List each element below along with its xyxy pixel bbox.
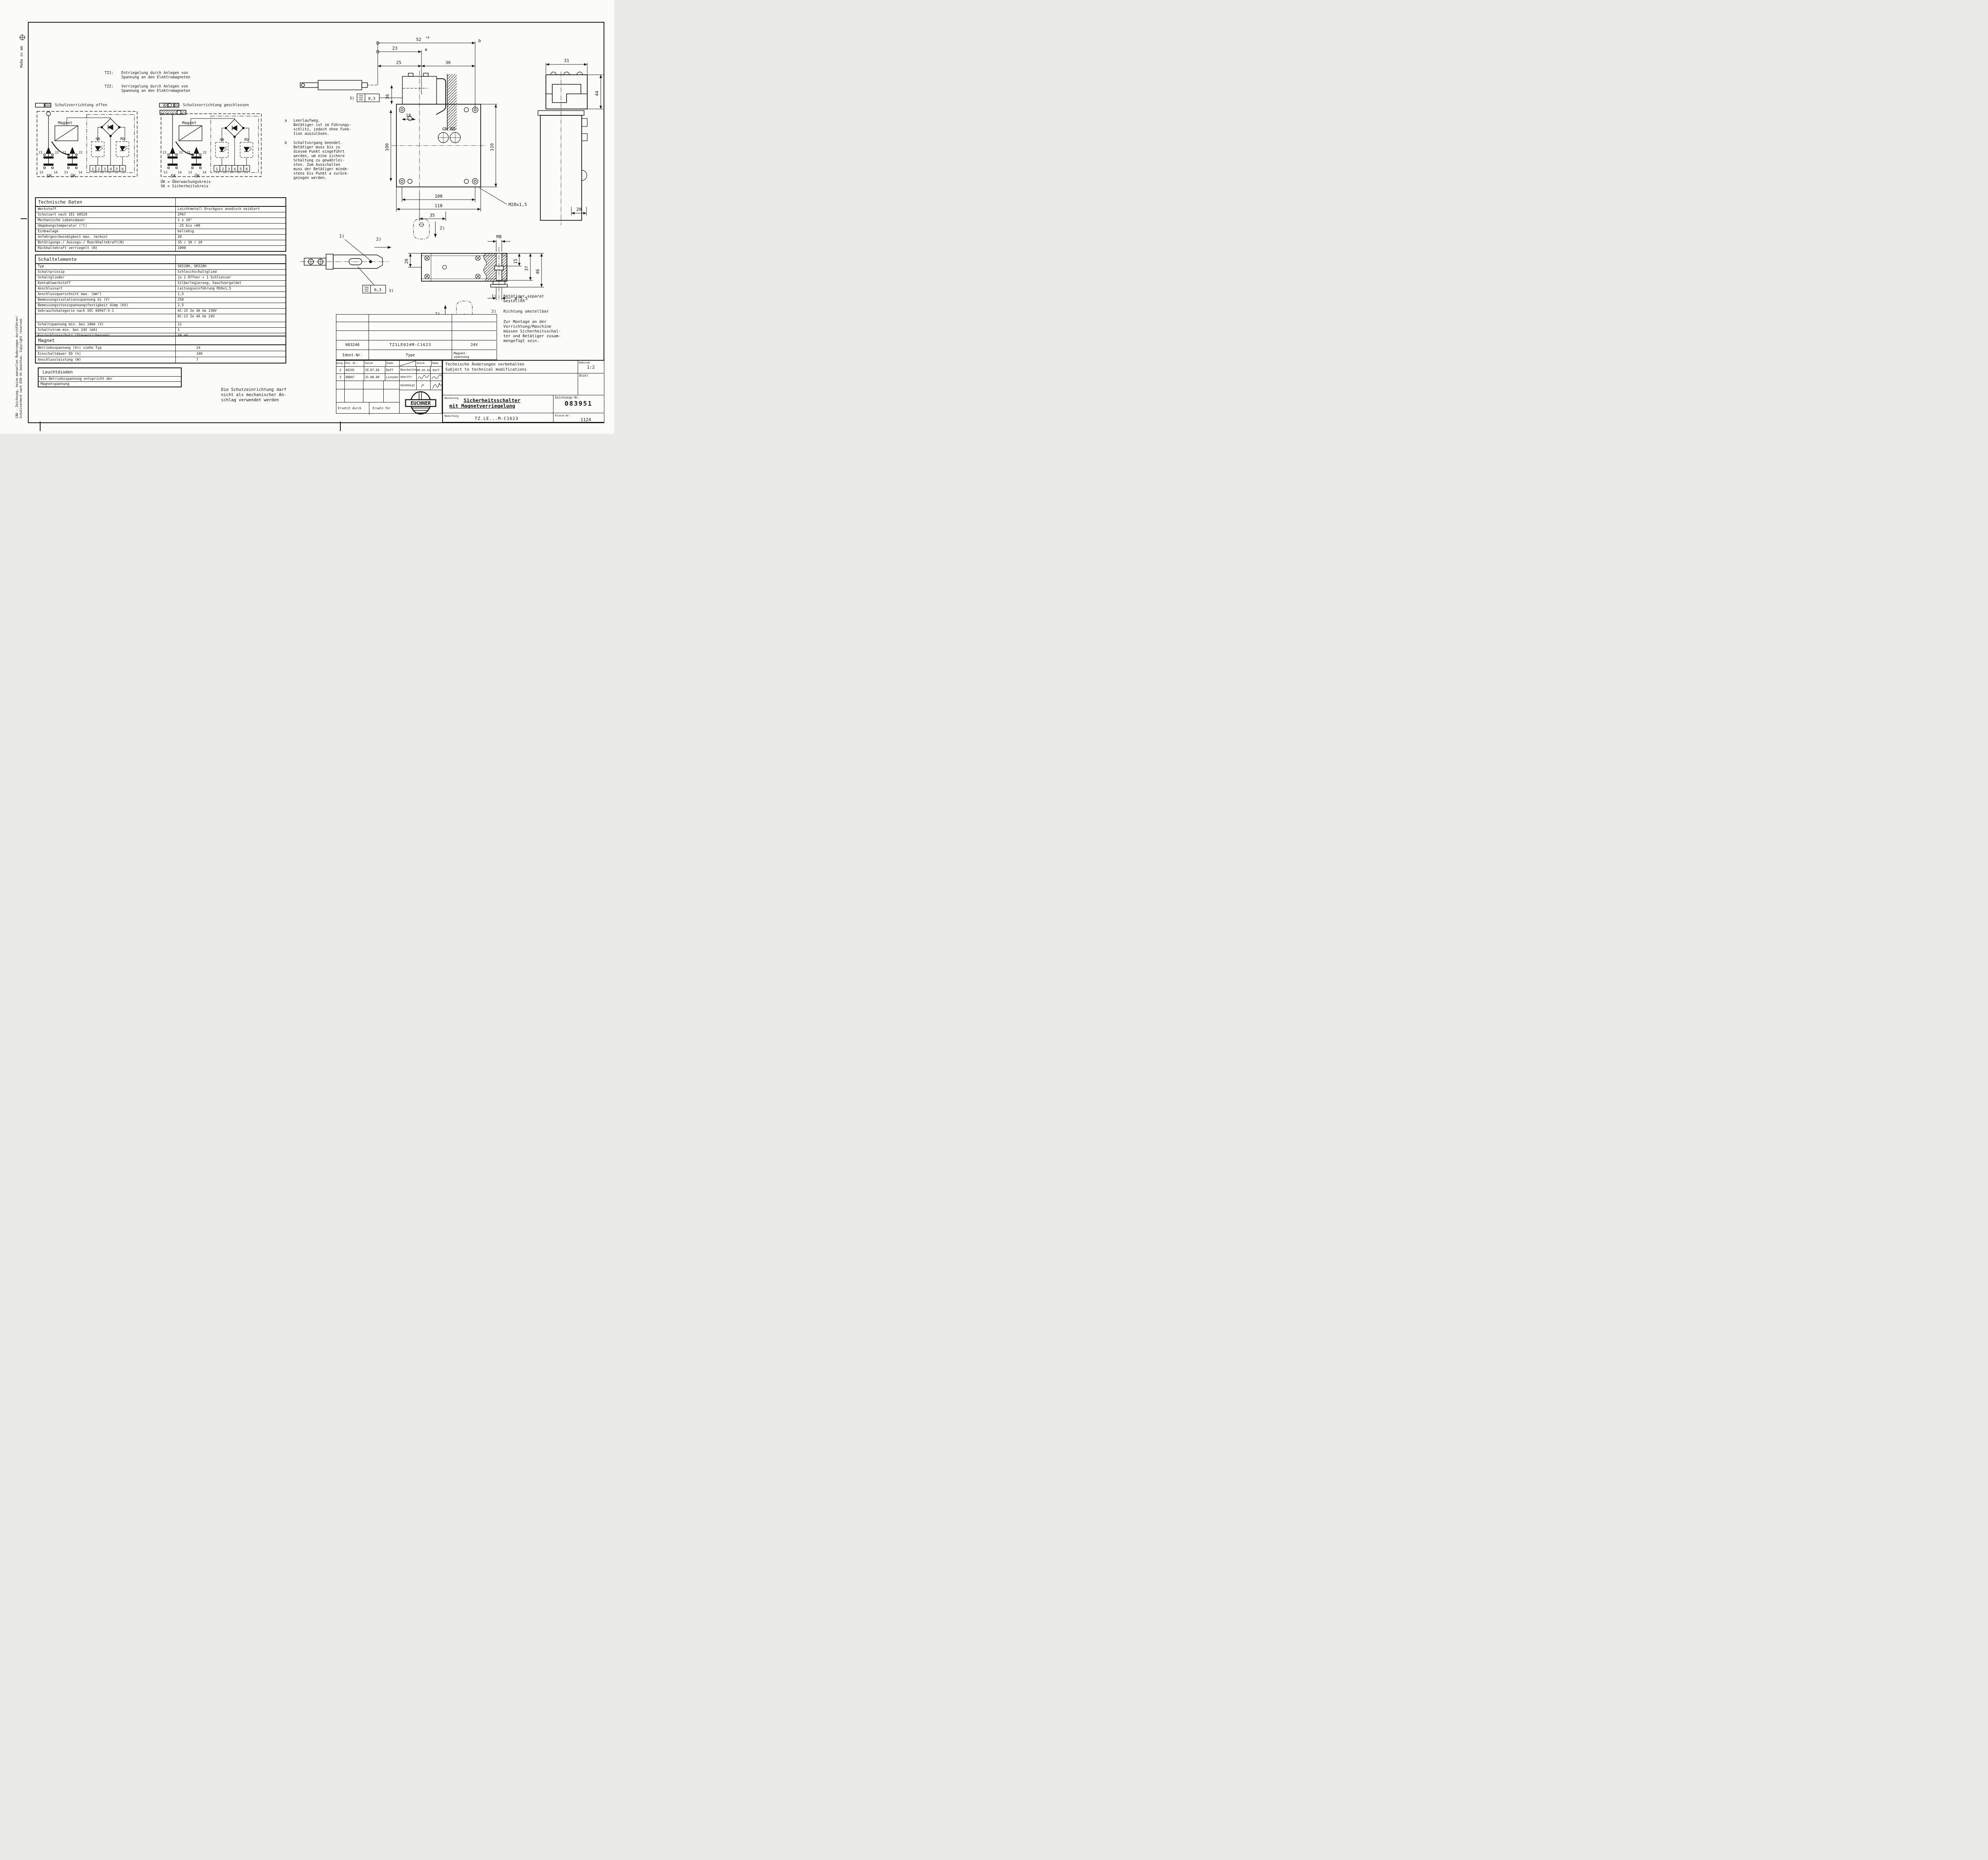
svg-text:22: 22	[79, 151, 83, 154]
circuit-diagram-closed: Magnet 21 22 21 22 13 14 13 14 SK ÜK GN …	[159, 110, 263, 178]
svg-text:3): 3)	[389, 289, 394, 293]
svg-text:13: 13	[188, 171, 192, 174]
modification-note: Technische Änderungen vorbehalten Subjec…	[443, 361, 578, 373]
units-note: Maße in mm	[20, 46, 24, 68]
svg-text:110: 110	[435, 203, 443, 208]
svg-text:46: 46	[535, 269, 540, 274]
svg-text:14: 14	[54, 171, 58, 174]
svg-text:ø 5,5: ø 5,5	[514, 296, 528, 301]
tz1-label: TZ1:	[105, 71, 118, 80]
table-row: Einbaulage beliebig	[36, 229, 285, 235]
approval-table: Datum Name Bearbeitet 06.02.01 Raff Gepr…	[400, 360, 442, 414]
svg-text:GN: GN	[220, 138, 224, 142]
table-row: Mechanische Lebensdauer 1 x 10⁶	[36, 218, 285, 224]
svg-text:4: 4	[234, 167, 236, 171]
signature	[431, 381, 443, 390]
table-row: Gebrauchskategorie nach IEC 60947-5-1 AC…	[36, 309, 285, 314]
svg-text:44: 44	[594, 91, 600, 96]
table-row: Werkstoff Leichtmetall Druckguss anodisc…	[36, 207, 285, 212]
circuit-open-title: Schutzvorrichtung offen	[35, 103, 107, 108]
svg-text:36: 36	[445, 60, 450, 65]
svg-text:6: 6	[122, 167, 124, 171]
svg-text:13: 13	[39, 171, 43, 174]
drawing-sheet: Maße in mm CAD - Zeichnung, keine manuel…	[0, 0, 614, 434]
revision-table: Ausg. Änd.-Nr. Datum Name 2 04245 19.07.…	[336, 360, 400, 414]
svg-text:13: 13	[64, 171, 68, 174]
svg-text:21: 21	[163, 151, 167, 154]
tz2-label: TZ2:	[105, 84, 118, 93]
svg-text:22: 22	[203, 151, 207, 154]
magnet-label: Magnet	[58, 121, 72, 125]
svg-text:GN: GN	[96, 137, 100, 141]
table-row: Anschlussleistung (W) 7	[36, 357, 285, 363]
guard-open-icon	[35, 103, 52, 108]
side-view-drawing: 31 44 20	[527, 56, 612, 231]
table-row: Anfahrgeschwindigkeit max. (m/min) 20	[36, 235, 285, 240]
signature	[417, 374, 430, 381]
table-row: Bemessungsisolationsspannung Ui (V) 250	[36, 297, 285, 303]
cad-protection-note: CAD - Zeichnung, keine manuellen Änderun…	[15, 315, 23, 418]
table-row: Schutzart nach IEC 60529 IP67	[36, 212, 285, 218]
svg-text:22: 22	[179, 151, 183, 154]
svg-text:+4: +4	[426, 36, 430, 39]
svg-text:20: 20	[576, 207, 581, 212]
svg-text:22: 22	[55, 151, 59, 154]
empty-cell	[443, 373, 578, 395]
svg-text:20: 20	[404, 258, 409, 264]
svg-text:100: 100	[384, 143, 390, 151]
table-title: Technische Daten	[36, 198, 176, 206]
svg-text:5: 5	[240, 167, 242, 171]
svg-text:13: 13	[163, 171, 167, 174]
bemerkung-cell: Bemerkung TZ.LE...M-C1623	[443, 413, 553, 423]
table-row: Schaltglieder je 1 Öffner + 1 Schliesser	[36, 275, 285, 281]
title-block-right: Technische Änderungen vorbehalten Subjec…	[442, 360, 604, 422]
svg-text:14: 14	[78, 171, 82, 174]
tz1-text: Entriegelung durch Anlegen von Spannung …	[121, 71, 190, 80]
technische-daten-table: Technische Daten Werkstoff Leichtmetall …	[35, 197, 286, 252]
ident-label: Ident-Nr.	[336, 350, 369, 360]
svg-text:EUCHNER: EUCHNER	[411, 400, 431, 406]
leuchtdioden-box: Leuchtdioden Die Betriebsspannung entspr…	[38, 367, 182, 387]
svg-text:21: 21	[186, 151, 190, 154]
svg-text:6: 6	[246, 167, 248, 171]
svg-text:RD: RD	[120, 137, 125, 141]
signature	[431, 374, 443, 381]
svg-text:100: 100	[435, 194, 443, 199]
svg-text:36: 36	[385, 94, 390, 99]
svg-text:2): 2)	[440, 225, 445, 231]
voltage-value: 24V	[452, 340, 496, 350]
table-row: Typ SK528H, ÜK528H	[36, 264, 285, 270]
table-row: Schaltprinzip Schleichschaltglied	[36, 270, 285, 275]
svg-text:0,3: 0,3	[368, 97, 375, 101]
svg-text:SK: SK	[47, 173, 52, 178]
edge-mark	[21, 218, 27, 219]
blatt-cell: Blatt	[578, 373, 604, 395]
magnet-label: Magnet	[182, 121, 196, 125]
benennung-cell: Benennung Sicherheitsschalter mit Magnet…	[443, 395, 553, 413]
svg-text:b: b	[478, 38, 481, 43]
tz2-text: Verriegelung durch Anlegen von Spannung …	[121, 84, 190, 93]
warning-note: Die Schutzeinrichtung darf nicht als mec…	[221, 387, 286, 403]
svg-text:1: 1	[216, 167, 218, 171]
svg-text:31: 31	[564, 58, 569, 63]
svg-text:18: 18	[406, 113, 411, 118]
ersatz-fuer: Ersatz für	[369, 402, 399, 415]
registration-icon	[19, 34, 25, 41]
table-row: Anschlussart Leitungseinführung M20x1,5	[36, 286, 285, 292]
type-value: TZ1LE024M-C1623	[369, 340, 452, 350]
svg-text:14: 14	[178, 171, 182, 174]
table-title: Magnet	[36, 336, 176, 344]
table-row: Kontaktwerkstoff Silberlegierung, hauchv…	[36, 281, 285, 286]
svg-text:15: 15	[513, 258, 518, 264]
ersetzt-durch: Ersetzt durch	[336, 402, 369, 415]
svg-text:3): 3)	[349, 96, 354, 101]
svg-text:4: 4	[110, 167, 112, 171]
revision-row: 2 04245 19.07.04 Raff	[336, 367, 399, 374]
svg-text:21: 21	[62, 151, 66, 154]
tz-notes: TZ1: Entriegelung durch Anlegen von Span…	[105, 71, 224, 98]
euchner-logo: EUCHNER	[400, 390, 442, 416]
circuit-legend: ÜK = Überwachungskreis SK = Sicherheitsk…	[161, 180, 211, 189]
fold-mark	[340, 422, 341, 431]
guard-closed-icon	[159, 103, 180, 108]
table-row: Schaltstrom min. bei 24V (mA) 1	[36, 328, 285, 333]
svg-text:M8: M8	[496, 234, 501, 239]
svg-text:2: 2	[222, 167, 224, 171]
schaltelemente-table: Schaltelemente Typ SK528H, ÜK528H Schalt…	[35, 255, 286, 339]
svg-text:37: 37	[524, 266, 529, 271]
fold-mark	[40, 422, 41, 431]
svg-text:21: 21	[39, 151, 43, 154]
svg-text:2): 2)	[376, 237, 381, 242]
table-row: Anschlussquerschnitt max. (mm²) 1,5	[36, 292, 285, 297]
type-label: Type	[369, 350, 452, 360]
svg-text:14: 14	[202, 171, 206, 174]
svg-text:52: 52	[416, 37, 421, 42]
ident-number: 083246	[336, 340, 369, 350]
svg-text:5: 5	[116, 167, 118, 171]
table-row: Einschaltdauer ED (%) 100	[36, 351, 285, 357]
table-row: Schaltspannung min. bei 10mA (V) 12	[36, 322, 285, 328]
svg-text:SK: SK	[171, 173, 176, 178]
massstab-cell: Maßstab 1:2	[578, 361, 604, 373]
svg-text:1): 1)	[339, 233, 344, 239]
revision-row: 3 08847 31.08.09 Linsner	[336, 374, 399, 381]
svg-text:110: 110	[489, 143, 495, 151]
svg-text:0,3: 0,3	[374, 288, 381, 292]
table-row: Umgebungstemperatur (°C) -25 bis +80	[36, 224, 285, 229]
svg-text:3: 3	[228, 167, 230, 171]
svg-text:1: 1	[92, 167, 94, 171]
svg-text:ÜK: ÜK	[194, 173, 200, 178]
table-title: Schaltelemente	[36, 255, 176, 263]
svg-text:M20x1,5: M20x1,5	[509, 202, 527, 207]
svg-text:2: 2	[98, 167, 100, 171]
zeichnungsnr-cell: Zeichnungs-Nr. 083951	[553, 395, 604, 413]
table-row: Bemessungsstossspannungsfestigkeit Uimp …	[36, 303, 285, 309]
voltage-label: Magnet- spannung	[452, 350, 496, 360]
title-block: 083246 TZ1LE024M-C1623 24V Ident-Nr. Typ…	[336, 314, 604, 422]
ident-table: 083246 TZ1LE024M-C1623 24V Ident-Nr. Typ…	[336, 314, 497, 360]
svg-text:RD: RD	[245, 138, 249, 142]
svg-text:ÜK: ÜK	[70, 173, 76, 178]
front-view-drawing: 52 +4 b 23 a 25 36 36 3) 0,3 18 100 110 …	[292, 31, 539, 230]
svg-text:23: 23	[392, 46, 397, 51]
svg-text:a: a	[425, 47, 427, 52]
signature	[417, 381, 430, 390]
svg-text:25: 25	[396, 60, 401, 65]
svg-text:GN RD: GN RD	[442, 126, 455, 132]
svg-text:3: 3	[104, 167, 106, 171]
table-row: Betätigungs-/ Auszugs-/ Rueckhaltekraft(…	[36, 240, 285, 246]
table-row: Rückhaltekraft verriegelt (N) 1000	[36, 246, 285, 251]
klassenr-cell: Klasse-Nr. 1124	[553, 413, 604, 423]
magnet-table: Magnet Betriebsspannung (V≂) siehe Typ 2…	[35, 336, 286, 363]
circuit-diagram-open: Magnet 21 22 21 22 13 14 13 14 SK ÜK GN …	[35, 110, 139, 178]
circuit-closed-title: Schutzvorrichtung geschlossen	[159, 103, 249, 108]
table-row: Betriebsspannung (V≂) siehe Typ 24	[36, 345, 285, 351]
table-row: DC-13 Ie 4A Ue 24V	[36, 314, 285, 319]
